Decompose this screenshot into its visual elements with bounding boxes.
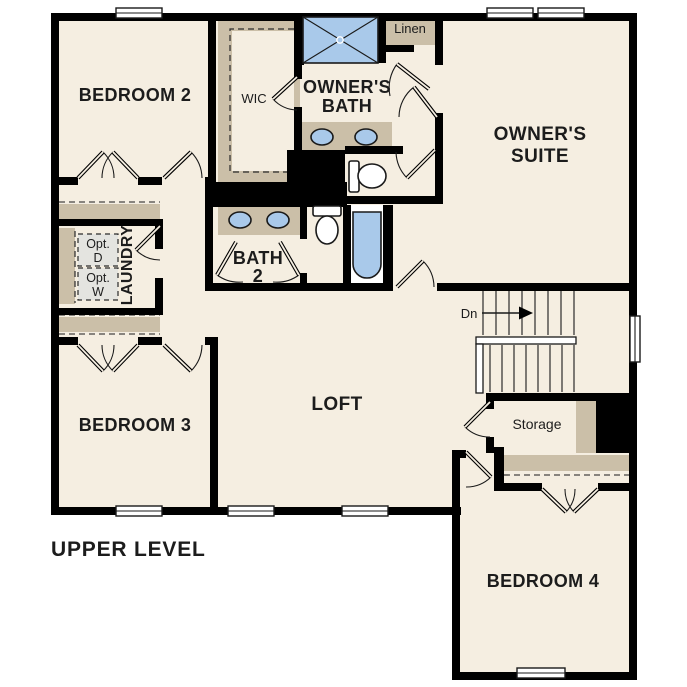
bedroom2-label: BEDROOM 2 bbox=[79, 85, 192, 105]
bedroom4-label: BEDROOM 4 bbox=[487, 571, 600, 591]
window bbox=[228, 506, 274, 516]
owners-suite-label-line1: OWNER'S bbox=[494, 124, 587, 145]
opt-dryer-label-line1: Opt. bbox=[86, 237, 110, 251]
window bbox=[116, 8, 162, 18]
stairs-dn-label: Dn bbox=[461, 306, 478, 321]
sink-icon bbox=[355, 129, 377, 145]
laundry-counter bbox=[59, 228, 75, 304]
floor-plan: BEDROOM 2 WIC OWNER'S BATH Linen OWNER'S… bbox=[0, 0, 687, 687]
window bbox=[630, 316, 640, 362]
bedroom4-closet-shelf bbox=[504, 455, 632, 471]
owners-bath-label-line1: OWNER'S bbox=[303, 77, 391, 97]
bathtub-icon bbox=[353, 212, 381, 278]
window bbox=[517, 668, 565, 678]
opt-washer-label-line2: W bbox=[92, 285, 104, 299]
opt-dryer-label-line2: D bbox=[93, 251, 102, 265]
void-beside-storage bbox=[596, 398, 632, 453]
shower-icon bbox=[303, 17, 378, 63]
window bbox=[487, 8, 533, 18]
floor-plan-page: BEDROOM 2 WIC OWNER'S BATH Linen OWNER'S… bbox=[0, 0, 687, 687]
storage-shelf bbox=[576, 401, 598, 453]
sink-icon bbox=[311, 129, 333, 145]
loft-label: LOFT bbox=[311, 394, 362, 415]
bath2-label-line2: 2 bbox=[253, 266, 263, 286]
sink-icon bbox=[229, 212, 251, 228]
bedroom3-label: BEDROOM 3 bbox=[79, 415, 192, 435]
owners-bath-label-line2: BATH bbox=[322, 96, 372, 116]
laundry-label: LAUNDRY bbox=[119, 225, 136, 305]
page-title: UPPER LEVEL bbox=[51, 538, 206, 561]
bedroom3-closet-shelf bbox=[59, 317, 160, 332]
hall-closet-shelf bbox=[59, 204, 160, 219]
window bbox=[538, 8, 584, 18]
storage-label: Storage bbox=[512, 416, 561, 432]
stair-railing-return bbox=[476, 344, 483, 393]
window bbox=[342, 506, 388, 516]
void-below-wic bbox=[213, 182, 347, 207]
window bbox=[116, 506, 162, 516]
linen-label: Linen bbox=[394, 21, 426, 36]
stair-railing bbox=[476, 337, 576, 344]
opt-washer-label-line1: Opt. bbox=[86, 271, 110, 285]
sink-icon bbox=[267, 212, 289, 228]
bath2-label-line1: BATH bbox=[233, 248, 283, 268]
wic-label: WIC bbox=[241, 91, 266, 106]
owners-suite-label-line2: SUITE bbox=[511, 146, 569, 167]
